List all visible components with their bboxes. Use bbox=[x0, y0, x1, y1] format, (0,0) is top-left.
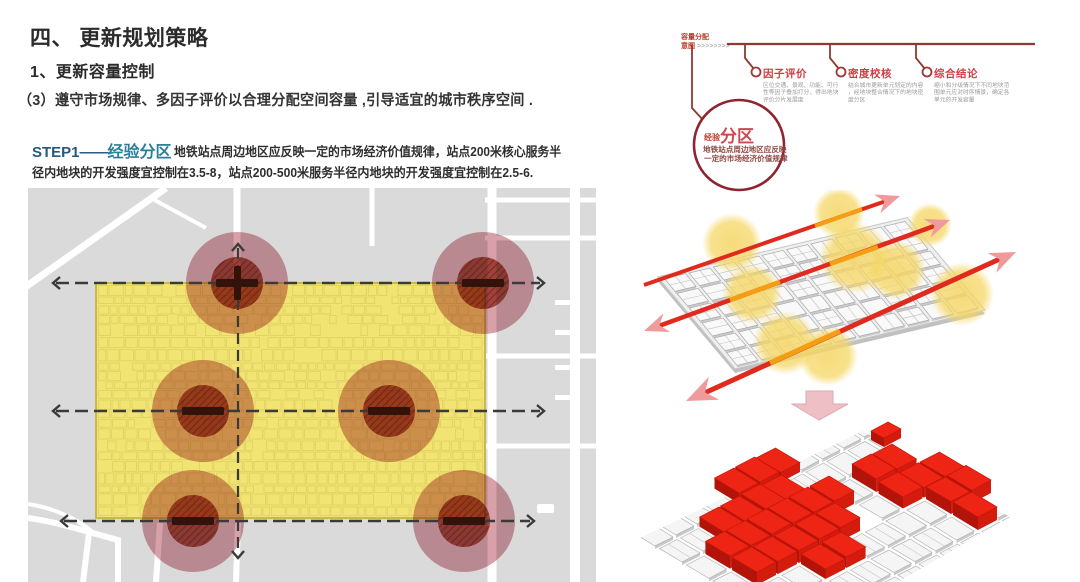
svg-text:分区: 分区 bbox=[720, 127, 754, 146]
svg-text:单元的开发容量: 单元的开发容量 bbox=[934, 95, 975, 103]
svg-text:容量分配: 容量分配 bbox=[680, 32, 709, 41]
svg-text:一定的市场经济价值规律: 一定的市场经济价值规律 bbox=[704, 153, 788, 163]
svg-text:经验: 经验 bbox=[704, 132, 721, 142]
svg-text:结合城市更新单元划定的内容: 结合城市更新单元划定的内容 bbox=[848, 81, 924, 89]
svg-text:围单元应对时序情景，确定各: 围单元应对时序情景，确定各 bbox=[934, 88, 1010, 96]
svg-text:地铁站点周边地区应反映: 地铁站点周边地区应反映 bbox=[703, 144, 787, 154]
svg-text:意图 >>>>>>>>: 意图 >>>>>>>> bbox=[681, 41, 730, 50]
svg-text:综合结论: 综合结论 bbox=[934, 67, 978, 80]
svg-text:评价分片发展度: 评价分片发展度 bbox=[763, 95, 804, 103]
svg-text:度分区: 度分区 bbox=[848, 95, 866, 103]
svg-text:因子评价: 因子评价 bbox=[763, 67, 807, 80]
svg-text:缩小和分级情况下不同地块范: 缩小和分级情况下不同地块范 bbox=[934, 81, 1010, 89]
svg-text:性等因子叠加打分，得出地块: 性等因子叠加打分，得出地块 bbox=[763, 88, 839, 96]
svg-text:区位交通、景观、功能、可行: 区位交通、景观、功能、可行 bbox=[763, 81, 839, 89]
svg-text:密度校核: 密度校核 bbox=[848, 67, 892, 80]
svg-text:，经地块整合情况下的地块密: ，经地块整合情况下的地块密 bbox=[848, 88, 924, 96]
